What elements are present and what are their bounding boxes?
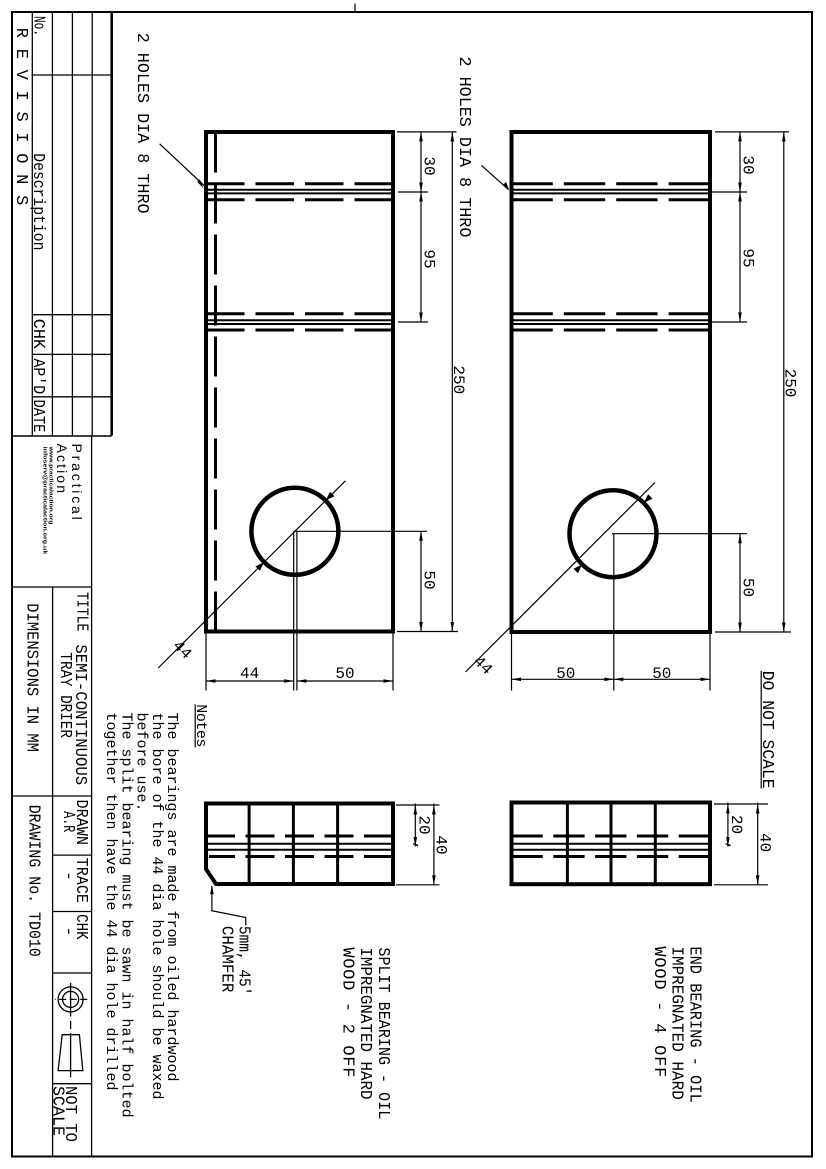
svg-text:CHK: CHK [28,319,47,350]
svg-text:DATE: DATE [28,400,47,433]
svg-text:Notes: Notes [192,704,209,747]
svg-text:40: 40 [432,835,450,854]
svg-text:IMPREGNATED HARD: IMPREGNATED HARD [355,947,374,1099]
svg-text:30: 30 [739,155,757,174]
svg-text:TRAY DRIER: TRAY DRIER [55,652,74,738]
svg-text:20: 20 [414,815,432,834]
svg-text:,: , [724,841,742,851]
svg-text:50: 50 [739,578,757,597]
svg-text:-: - [58,871,77,881]
svg-text:-: - [58,926,77,936]
svg-text:DO NOT SCALE: DO NOT SCALE [757,671,776,789]
svg-text:WOOD - 2 OFF: WOOD - 2 OFF [337,947,356,1077]
svg-text:50: 50 [556,665,575,683]
svg-text:30: 30 [420,156,438,175]
svg-text:TITLE: TITLE [72,592,91,631]
svg-text:40: 40 [756,833,774,852]
svg-text:50: 50 [335,665,354,683]
svg-text:44: 44 [169,637,195,663]
svg-text:A.R: A.R [58,811,77,832]
svg-text:95: 95 [739,248,757,267]
svg-text:2 HOLES DIA 8 THRO: 2 HOLES DIA 8 THRO [132,33,151,214]
svg-text:SCALE: SCALE [48,1086,67,1136]
svg-text:infoserv@practicalaction.org.u: infoserv@practicalaction.org.uk [42,447,48,555]
svg-text:SPLIT BEARING - OIL: SPLIT BEARING - OIL [373,947,392,1119]
svg-text:DRAWING No. TD010: DRAWING No. TD010 [24,805,43,957]
svg-text:20: 20 [727,815,745,834]
svg-text:44: 44 [240,665,259,683]
svg-text:WOOD - 4 OFF: WOOD - 4 OFF [649,946,668,1077]
svg-text:2 HOLES DIA 8 THRO: 2 HOLES DIA 8 THRO [454,57,473,238]
svg-text:,: , [411,841,429,851]
svg-text:CHAMFER: CHAMFER [217,926,236,993]
svg-text:AP'D: AP'D [28,359,47,395]
svg-text:together then have the 44 dia: together then have the 44 dia hole drill… [102,713,119,1091]
svg-text:50: 50 [420,570,438,589]
svg-text:95: 95 [420,249,438,268]
svg-text:DIMENSIONS IN MM: DIMENSIONS IN MM [22,603,41,752]
svg-text:END BEARING - OIL: END BEARING - OIL [685,946,704,1102]
svg-text:No.: No. [29,16,48,36]
svg-text:REVISIONS: REVISIONS [11,28,30,206]
svg-text:Action: Action [54,444,70,494]
svg-text:250: 250 [780,369,798,398]
svg-text:44: 44 [469,653,495,679]
svg-text:Practical: Practical [69,444,85,520]
svg-text:250: 250 [449,365,467,394]
svg-text:50: 50 [652,665,671,683]
svg-text:IMPREGNATED HARD: IMPREGNATED HARD [667,946,686,1099]
